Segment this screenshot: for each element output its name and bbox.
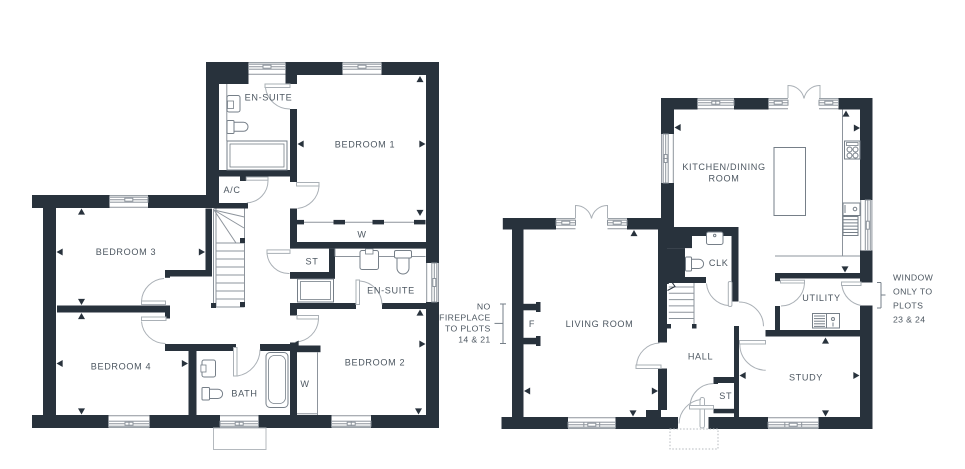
svg-text:CLK: CLK	[709, 258, 729, 268]
svg-text:A/C: A/C	[223, 185, 240, 195]
svg-text:EN-SUITE: EN-SUITE	[367, 286, 415, 296]
svg-text:BEDROOM 2: BEDROOM 2	[345, 358, 405, 368]
svg-text:ST: ST	[719, 391, 732, 401]
svg-text:W: W	[357, 230, 366, 240]
svg-text:TO PLOTS: TO PLOTS	[445, 324, 491, 334]
svg-text:BEDROOM 4: BEDROOM 4	[91, 362, 151, 372]
svg-text:W: W	[300, 379, 309, 389]
svg-text:FIREPLACE: FIREPLACE	[439, 313, 490, 323]
svg-text:EN-SUITE: EN-SUITE	[245, 93, 293, 103]
svg-text:F: F	[529, 319, 535, 329]
svg-text:STUDY: STUDY	[789, 373, 823, 383]
svg-text:HALL: HALL	[688, 352, 713, 362]
svg-text:BEDROOM 3: BEDROOM 3	[96, 247, 156, 257]
svg-text:23 & 24: 23 & 24	[893, 315, 925, 325]
svg-text:ST: ST	[306, 257, 319, 267]
svg-text:KITCHEN/DINING: KITCHEN/DINING	[682, 162, 765, 172]
svg-text:BEDROOM 1: BEDROOM 1	[335, 140, 395, 150]
svg-text:LIVING ROOM: LIVING ROOM	[566, 319, 634, 329]
svg-text:ROOM: ROOM	[709, 174, 740, 184]
svg-text:BATH: BATH	[231, 389, 257, 399]
svg-text:WINDOW: WINDOW	[893, 273, 934, 283]
svg-text:14 & 21: 14 & 21	[458, 335, 490, 345]
svg-text:PLOTS: PLOTS	[893, 301, 923, 311]
svg-text:UTILITY: UTILITY	[802, 293, 840, 303]
svg-text:NO: NO	[477, 301, 491, 311]
svg-text:ONLY TO: ONLY TO	[893, 287, 932, 297]
